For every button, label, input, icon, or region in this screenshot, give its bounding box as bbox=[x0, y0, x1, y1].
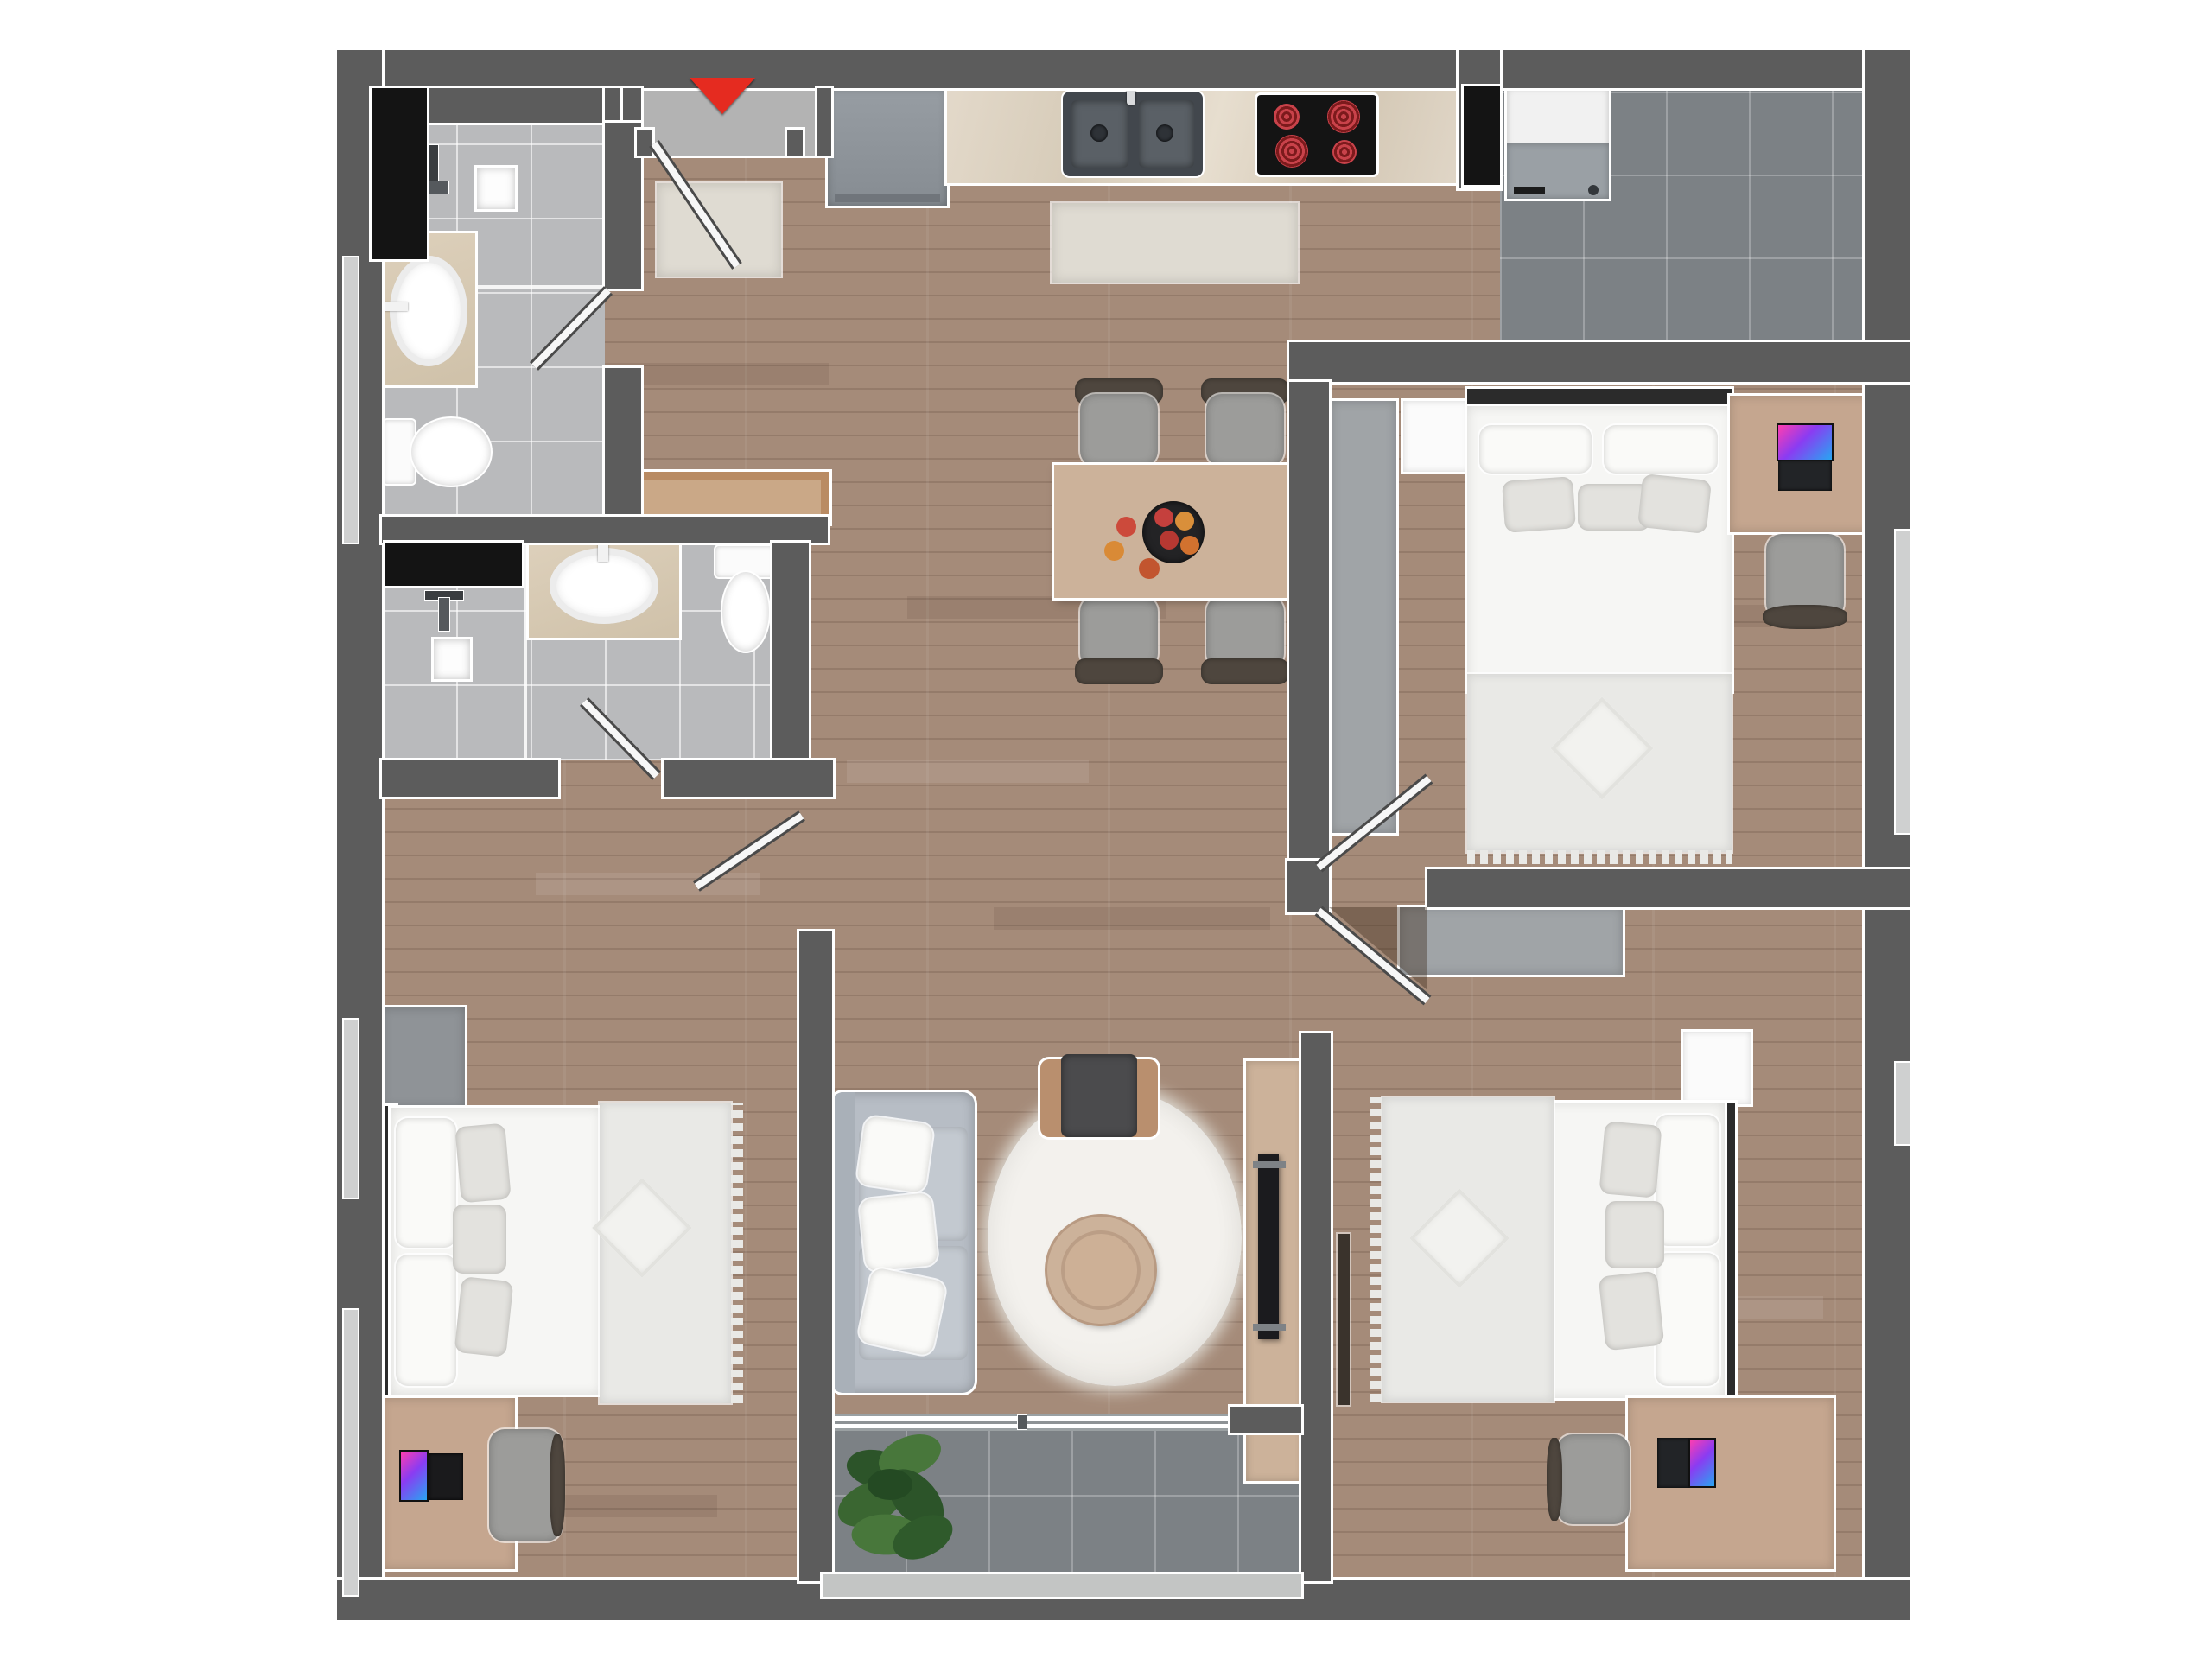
floor-plan bbox=[0, 0, 2212, 1659]
door-shadow bbox=[1329, 907, 1427, 990]
door-layer bbox=[0, 0, 2212, 1659]
